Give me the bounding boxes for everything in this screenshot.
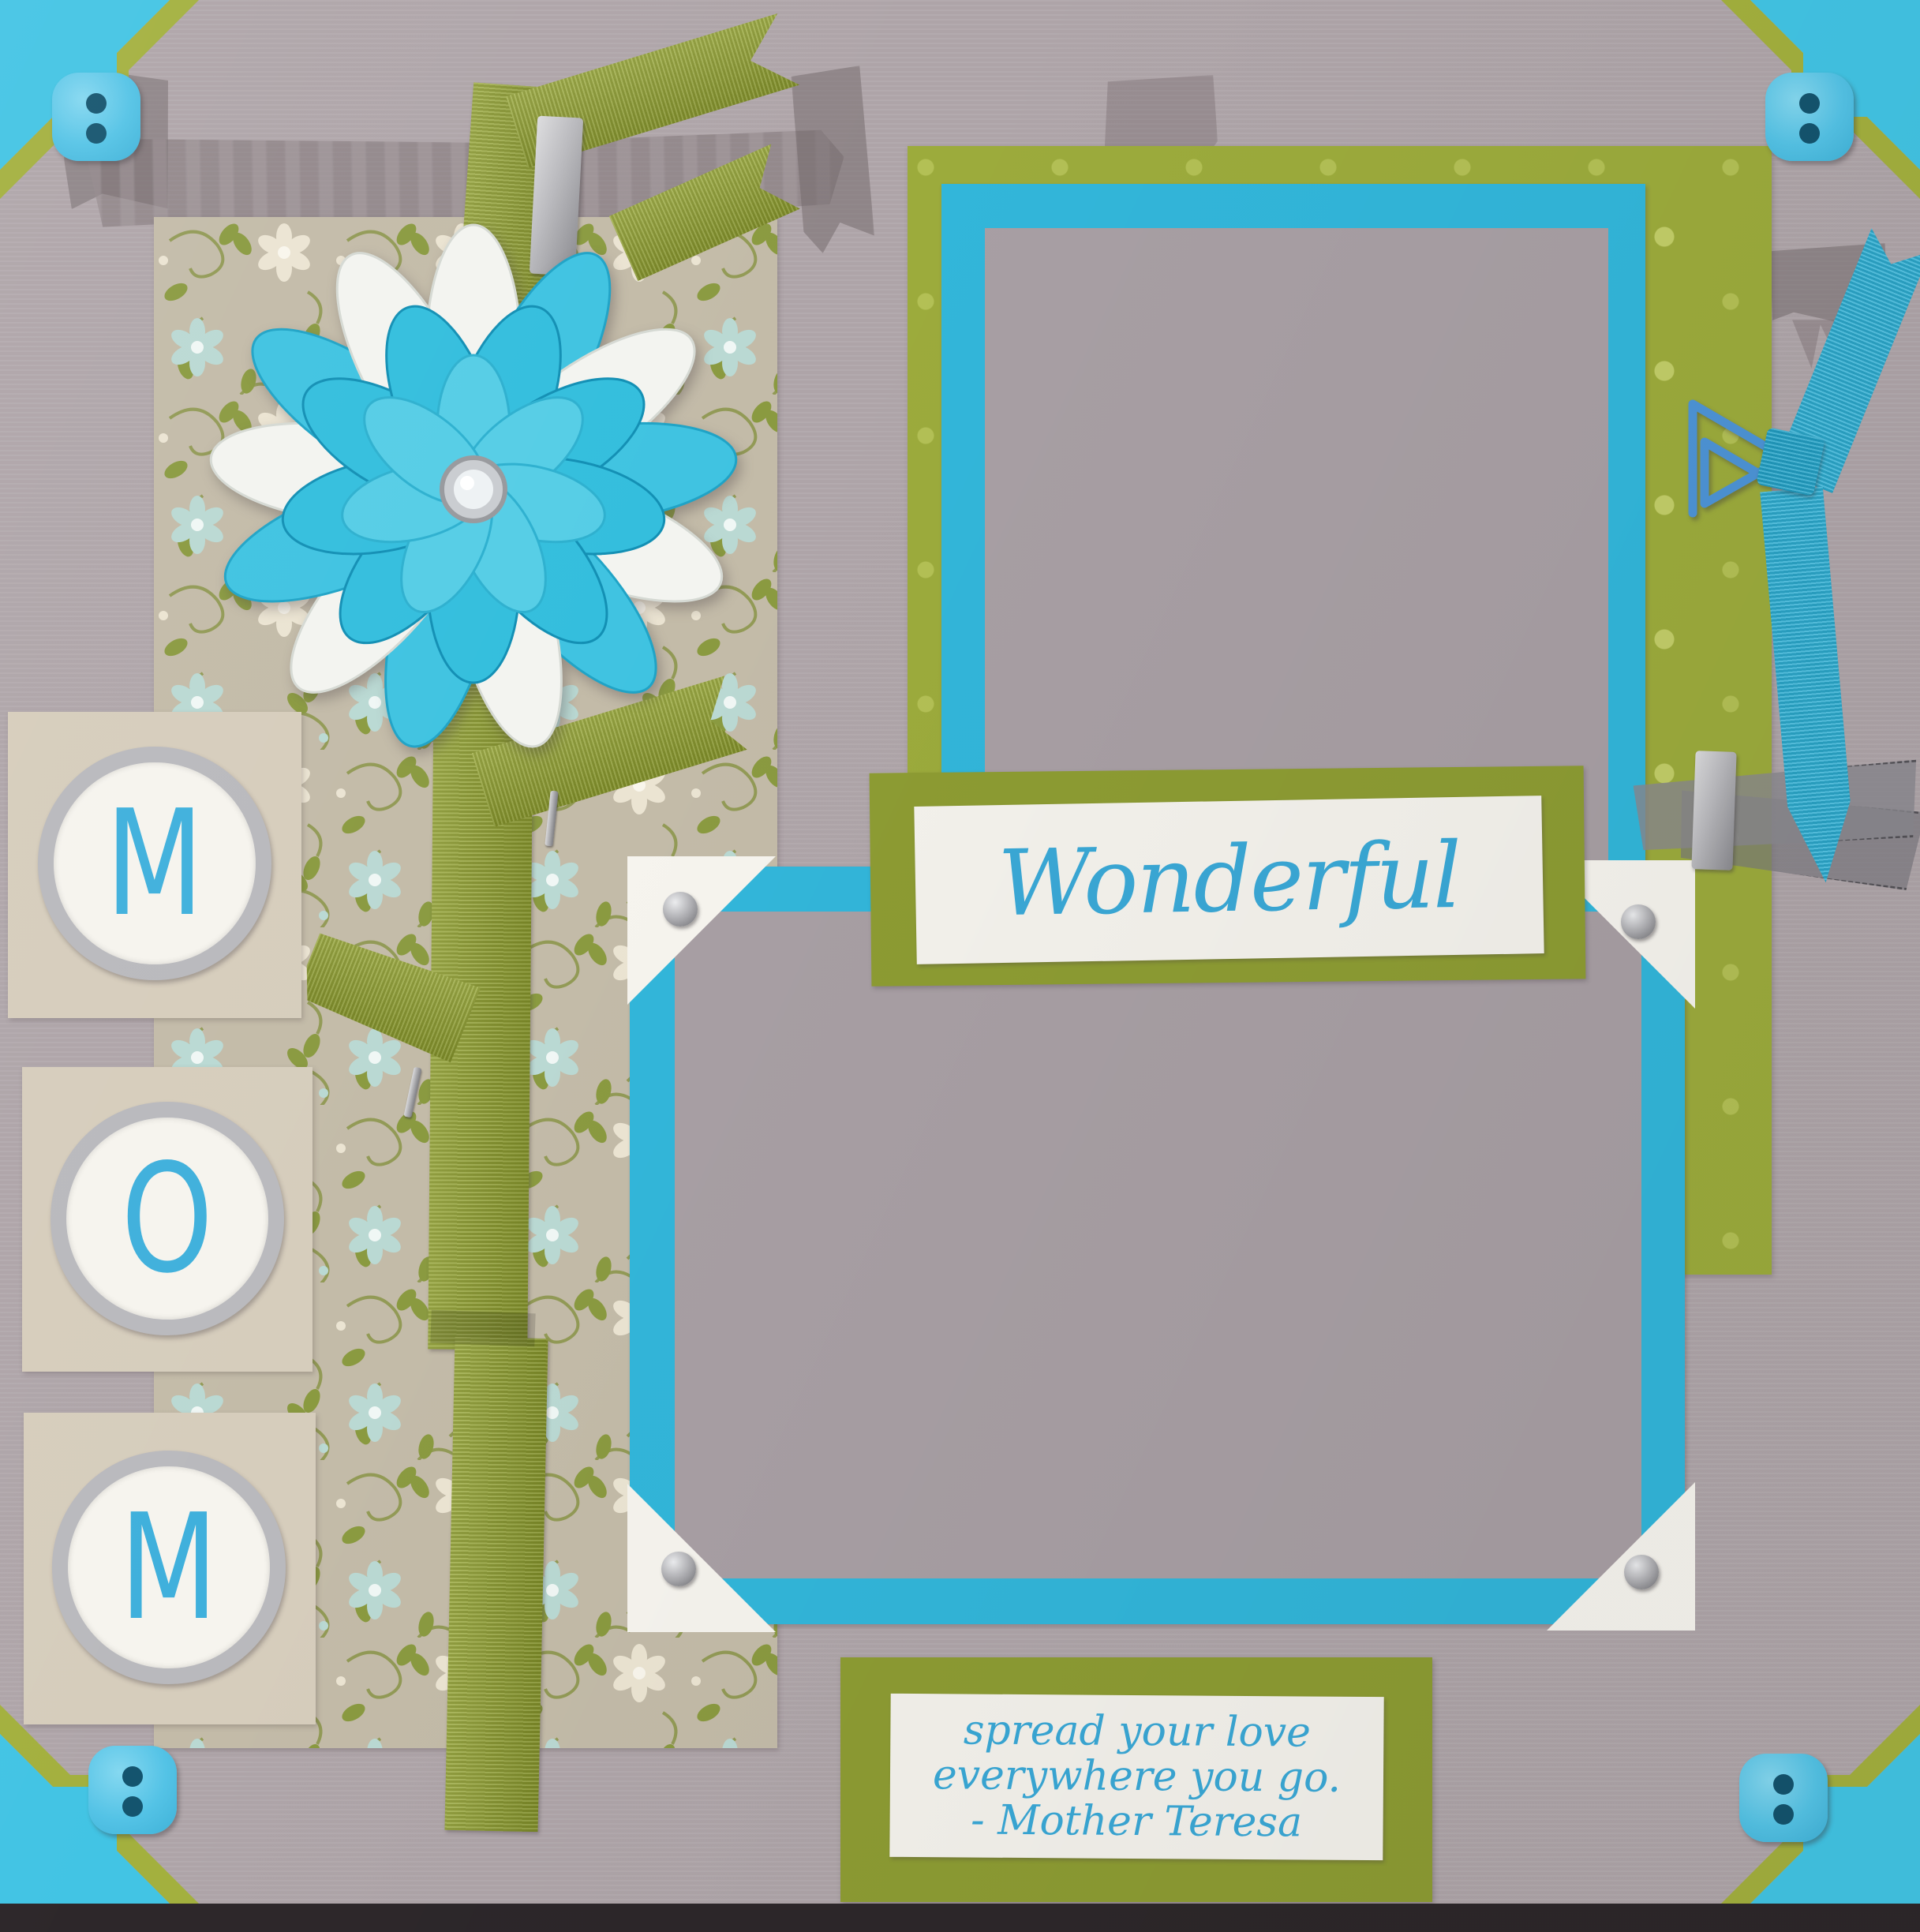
- monogram-circle-1: M: [38, 747, 271, 980]
- quote-line-3: - Mother Teresa: [971, 1799, 1302, 1846]
- page-edge-shadow: [0, 1904, 1920, 1932]
- monogram-letter-3: M: [120, 1482, 219, 1653]
- quote-line-1: spread your love: [964, 1708, 1311, 1755]
- corner-button-top-left-icon: [52, 73, 140, 161]
- monogram-letter-1: M: [106, 778, 204, 949]
- sheer-ribbon-clip-icon: [1691, 751, 1736, 871]
- corner-button-bottom-left-icon: [88, 1746, 177, 1834]
- stem-ribbon-lower: [444, 1337, 548, 1832]
- brad-top-left-icon: [663, 892, 698, 927]
- main-photo-placeholder: [675, 912, 1641, 1578]
- quote-line-2: everywhere you go.: [933, 1753, 1341, 1801]
- brad-bottom-left-icon: [661, 1552, 696, 1586]
- bow-knot: [1756, 427, 1825, 496]
- monogram-circle-3: M: [52, 1451, 286, 1684]
- monogram-circle-2: O: [51, 1102, 284, 1335]
- wonderful-text: Wonderful: [997, 823, 1462, 937]
- flower-embellishment: [189, 201, 758, 777]
- quote-card: spread your love everywhere you go. - Mo…: [889, 1694, 1383, 1860]
- corner-button-top-right-icon: [1765, 73, 1854, 161]
- wonderful-label: Wonderful: [914, 796, 1544, 964]
- stamped-banner-right-flag-icon: [791, 66, 875, 255]
- stem-fold-shadow: [430, 1310, 535, 1347]
- brad-bottom-right-icon: [1624, 1555, 1659, 1589]
- corner-button-bottom-right-icon: [1739, 1754, 1828, 1842]
- brad-top-right-icon: [1621, 904, 1656, 939]
- scrapbook-page: Wonderful spread your love everywhere yo…: [0, 0, 1920, 1932]
- monogram-letter-2: O: [122, 1132, 214, 1306]
